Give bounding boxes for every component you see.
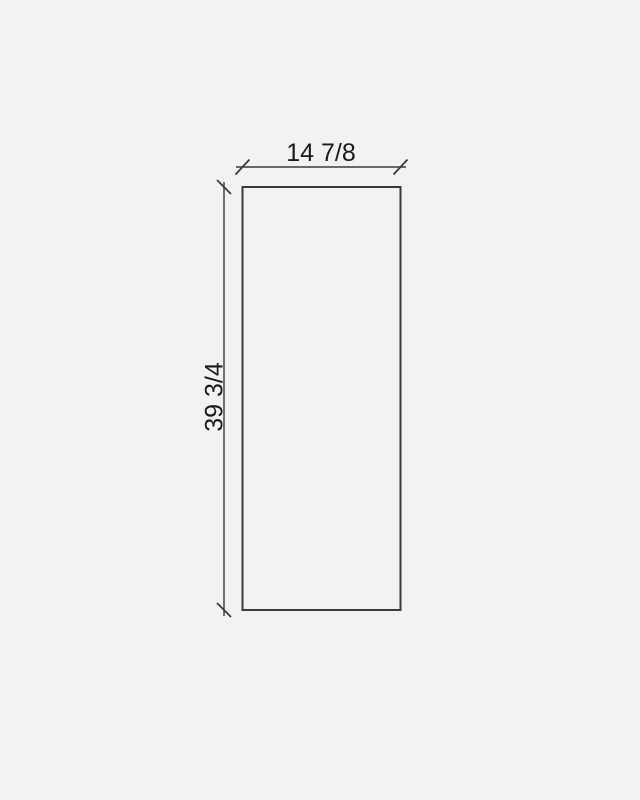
width-dimension: 14 7/8	[236, 139, 408, 175]
height-dimension-label: 39 3/4	[201, 362, 229, 432]
panel-outline-rectangle	[243, 187, 401, 610]
dimension-drawing-canvas: 14 7/8 39 3/4	[0, 0, 640, 800]
panel-dimension-diagram: 14 7/8 39 3/4	[0, 0, 640, 800]
height-dimension: 39 3/4	[201, 180, 232, 617]
width-dimension-label: 14 7/8	[286, 139, 356, 167]
